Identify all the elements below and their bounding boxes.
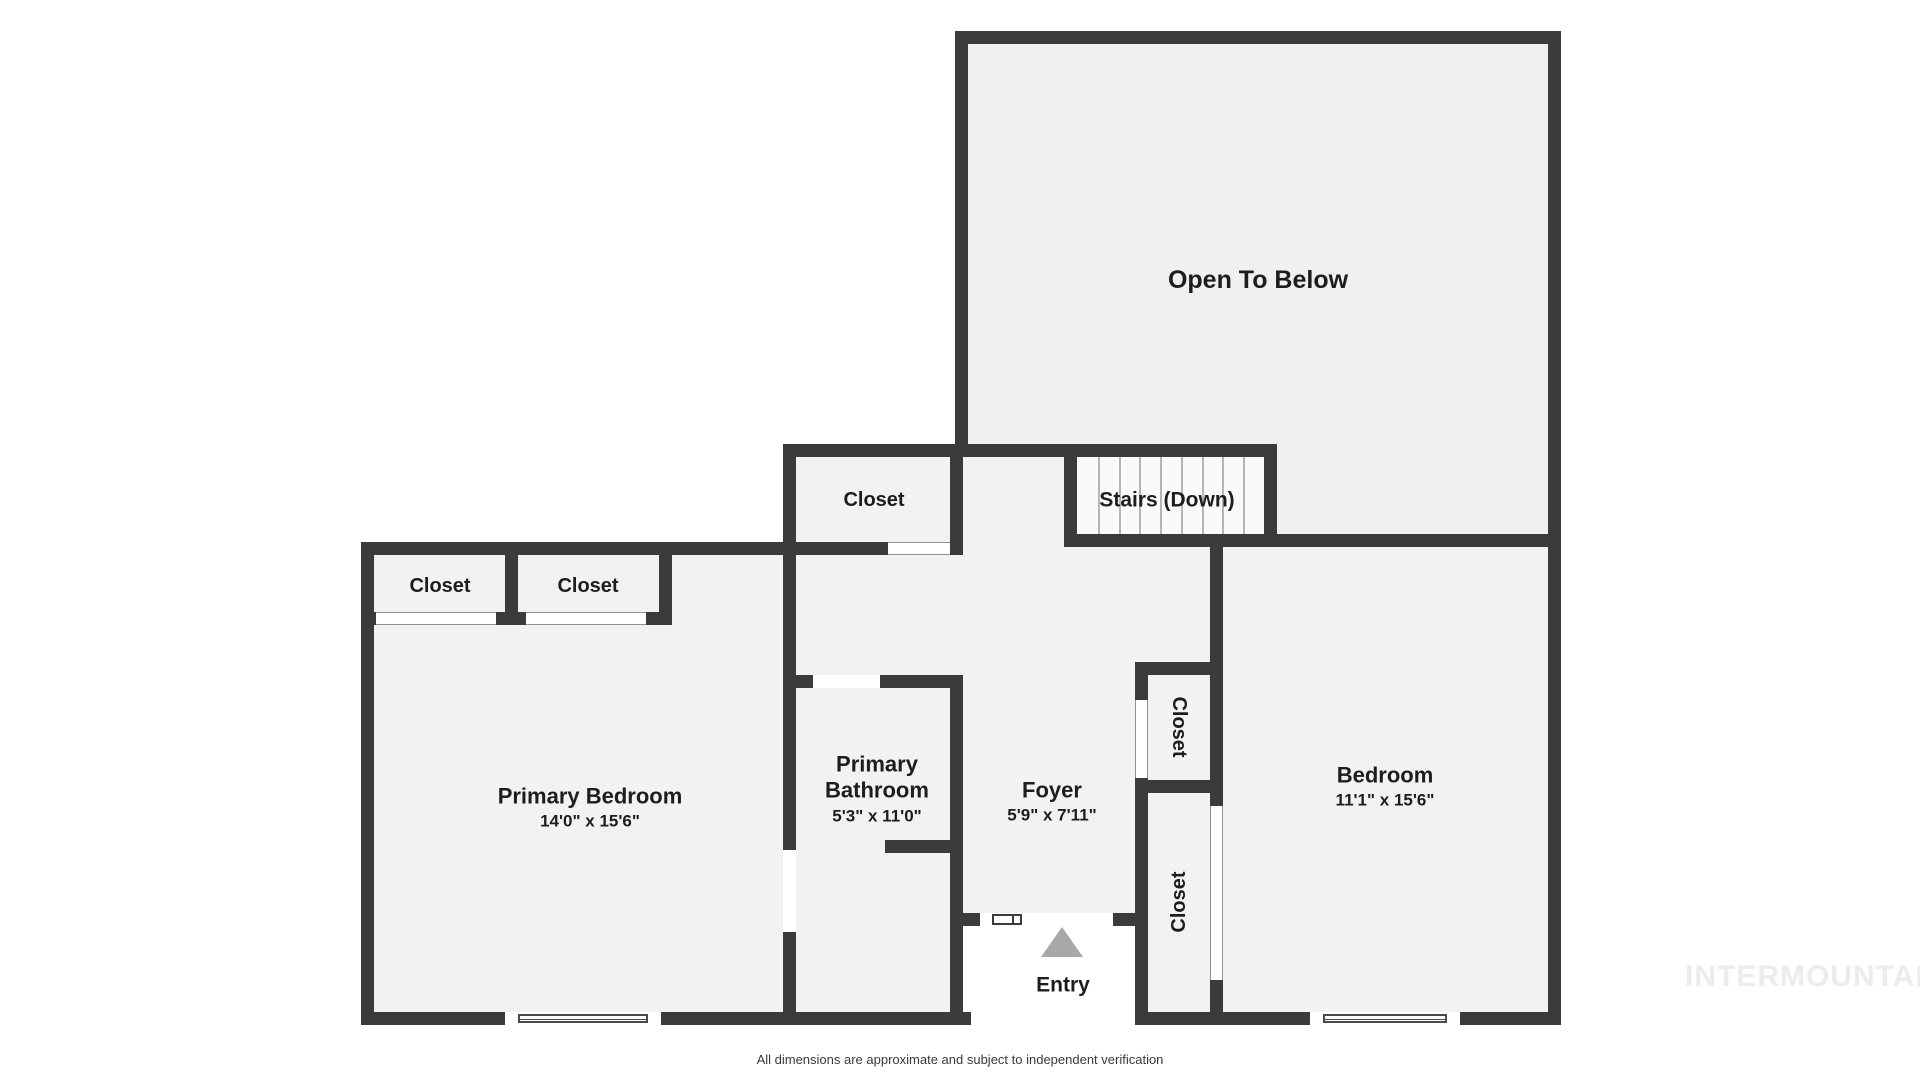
wall-segment bbox=[1264, 444, 1277, 547]
bedroom-label: Bedroom 11'1" x 15'6" bbox=[1336, 763, 1435, 812]
wall-segment bbox=[361, 542, 374, 1025]
closet-door-opening bbox=[1135, 700, 1148, 778]
wall-segment bbox=[361, 1012, 971, 1025]
closet-door-opening bbox=[1210, 806, 1223, 980]
bedroom-closet-label: Closet bbox=[1167, 871, 1191, 932]
open-to-below-label: Open To Below bbox=[1168, 265, 1348, 295]
room-dimensions: 5'3" x 11'0" bbox=[802, 806, 952, 826]
wall-segment bbox=[659, 555, 672, 625]
wall-segment bbox=[1064, 534, 1561, 547]
wall-segment bbox=[955, 31, 968, 457]
room-dimensions: 5'9" x 7'11" bbox=[1007, 806, 1096, 826]
stairs-label: Stairs (Down) bbox=[1099, 487, 1234, 512]
wall-segment bbox=[955, 31, 1561, 44]
stair-tread-line bbox=[1243, 457, 1245, 534]
wall-segment bbox=[950, 444, 963, 555]
foyer-label: Foyer 5'9" x 7'11" bbox=[1007, 778, 1096, 827]
room-name: Primary Bedroom bbox=[498, 784, 683, 810]
wall-segment bbox=[1548, 31, 1561, 1025]
wall-segment bbox=[1135, 793, 1148, 1025]
closet-door-opening bbox=[888, 542, 950, 555]
primary-closet-1-label: Closet bbox=[409, 574, 470, 598]
disclaimer-text: All dimensions are approximate and subje… bbox=[0, 1052, 1920, 1067]
wall-segment bbox=[783, 444, 796, 1025]
front-door-icon bbox=[992, 914, 1022, 925]
wall-segment bbox=[950, 675, 963, 1025]
primary-closet-2-label: Closet bbox=[557, 574, 618, 598]
wall-segment bbox=[1064, 444, 1077, 547]
window-icon bbox=[1323, 1014, 1447, 1023]
wall-segment bbox=[783, 444, 1277, 457]
primary-bathroom-label: Primary Bathroom 5'3" x 11'0" bbox=[802, 751, 952, 826]
room-name: Primary Bathroom bbox=[802, 751, 952, 804]
hall-closet-label: Closet bbox=[843, 488, 904, 512]
foyer-closet-label: Closet bbox=[1167, 696, 1191, 757]
watermark-text: INTERMOUNTAIN bbox=[1685, 960, 1920, 994]
bedroom-door-opening bbox=[783, 850, 796, 932]
room-dimensions: 14'0" x 15'6" bbox=[498, 812, 683, 832]
wall-segment bbox=[505, 555, 518, 625]
bathroom-door-opening bbox=[813, 675, 880, 688]
entry-arrow-icon bbox=[1041, 927, 1083, 957]
room-name: Bedroom bbox=[1336, 763, 1435, 789]
entry-label: Entry bbox=[1036, 972, 1090, 997]
floor-plan: Open To Below Stairs (Down) Closet Close… bbox=[0, 0, 1920, 1080]
wall-segment bbox=[361, 542, 796, 555]
window-icon bbox=[518, 1014, 648, 1023]
primary-bedroom-label: Primary Bedroom 14'0" x 15'6" bbox=[498, 784, 683, 833]
room-name: Foyer bbox=[1007, 778, 1096, 804]
closet-door-opening bbox=[376, 612, 496, 625]
room-dimensions: 11'1" x 15'6" bbox=[1336, 791, 1435, 811]
closet-door-opening bbox=[526, 612, 646, 625]
